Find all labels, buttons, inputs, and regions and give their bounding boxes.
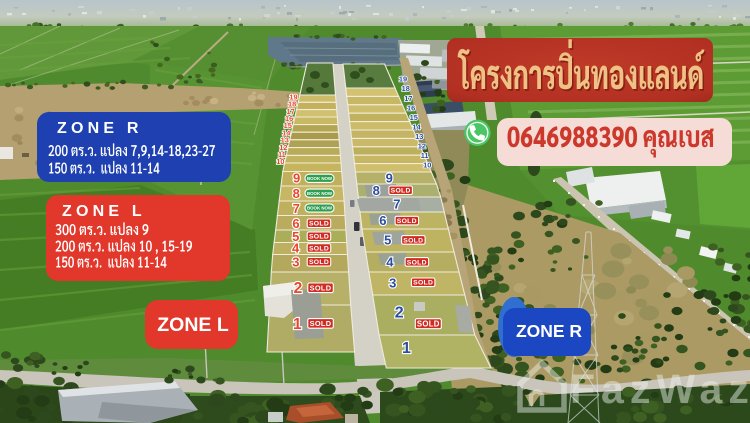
svg-text:2: 2 [294,280,303,297]
svg-text:BOOK NOW: BOOK NOW [307,191,333,196]
svg-text:SOLD: SOLD [309,221,329,228]
svg-text:SOLD: SOLD [407,259,427,266]
svg-text:4: 4 [386,255,394,270]
svg-text:SOLD: SOLD [397,218,417,225]
svg-text:3: 3 [292,255,299,270]
svg-text:17: 17 [404,94,412,103]
svg-text:9: 9 [293,171,300,186]
svg-text:SOLD: SOLD [309,245,329,252]
svg-text:1: 1 [293,316,302,333]
svg-text:ZONE R: ZONE R [57,120,143,137]
svg-text:3: 3 [389,276,396,291]
svg-text:9: 9 [386,171,393,186]
svg-text:SOLD: SOLD [403,237,423,244]
svg-text:8: 8 [293,186,300,201]
svg-text:18: 18 [402,84,410,93]
svg-text:7: 7 [393,196,400,211]
svg-text:1: 1 [402,340,411,357]
svg-text:8: 8 [373,183,380,198]
svg-text:10: 10 [276,157,284,166]
svg-text:10: 10 [423,161,431,170]
svg-text:SOLD: SOLD [310,284,332,293]
svg-text:16: 16 [407,103,415,112]
svg-text:ZONE R: ZONE R [516,321,582,341]
svg-text:SOLD: SOLD [309,259,329,266]
svg-text:2: 2 [395,305,404,322]
svg-text:12: 12 [418,142,426,151]
svg-text:5: 5 [384,233,391,248]
svg-text:SOLD: SOLD [309,234,329,241]
svg-text:11: 11 [421,151,429,160]
svg-text:SOLD: SOLD [310,319,332,328]
svg-text:6: 6 [379,213,386,228]
svg-text:13: 13 [415,132,423,141]
svg-text:15: 15 [410,113,418,122]
svg-text:BOOK NOW: BOOK NOW [307,206,333,211]
svg-text:SOLD: SOLD [413,280,433,287]
svg-text:ZONE L: ZONE L [62,203,146,220]
svg-text:ZONE L: ZONE L [157,314,229,336]
svg-text:FazWaz: FazWaz [570,366,750,412]
svg-text:7: 7 [293,201,300,216]
svg-text:4: 4 [292,241,300,256]
svg-text:19: 19 [399,75,407,84]
svg-text:SOLD: SOLD [417,320,440,329]
svg-text:14: 14 [412,122,421,131]
svg-text:SOLD: SOLD [391,188,411,195]
svg-text:BOOK NOW: BOOK NOW [307,176,333,181]
